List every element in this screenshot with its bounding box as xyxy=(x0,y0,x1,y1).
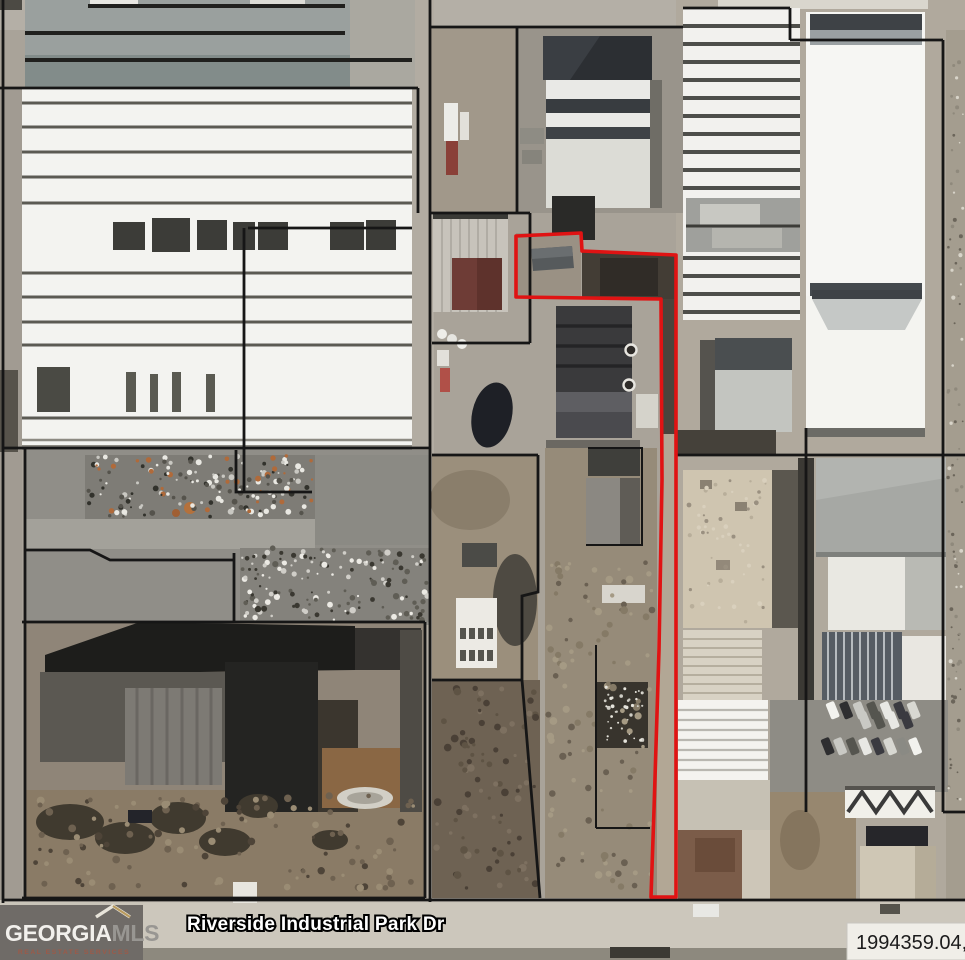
aerial-parcel-map: Riverside Industrial Park Dr GEORGIAMLS … xyxy=(0,0,965,960)
right-side-buildings xyxy=(676,8,946,706)
parcel-number-badge: 1994359.04, xyxy=(847,923,965,960)
bottom-road-overlay: Riverside Industrial Park Dr GEORGIAMLS … xyxy=(0,903,965,960)
parcel-number: 1994359.04, xyxy=(856,932,965,954)
big-white-warehouse xyxy=(22,88,412,450)
aerial-photo: Riverside Industrial Park Dr GEORGIAMLS … xyxy=(0,0,965,960)
street-label: Riverside Industrial Park Dr xyxy=(187,914,445,935)
rooftop-hvac-units xyxy=(113,218,396,252)
logo-tagline: REAL ESTATE SERVICES xyxy=(18,949,130,956)
logo-text-mls: MLS xyxy=(112,920,160,946)
bottom-left-building xyxy=(25,622,425,906)
junkyard xyxy=(25,450,430,625)
logo-text-georgia: GEORGIA xyxy=(5,920,112,946)
mls-logo: GEORGIAMLS REAL ESTATE SERVICES xyxy=(0,905,159,960)
svg-text:GEORGIAMLS: GEORGIAMLS xyxy=(5,920,159,946)
